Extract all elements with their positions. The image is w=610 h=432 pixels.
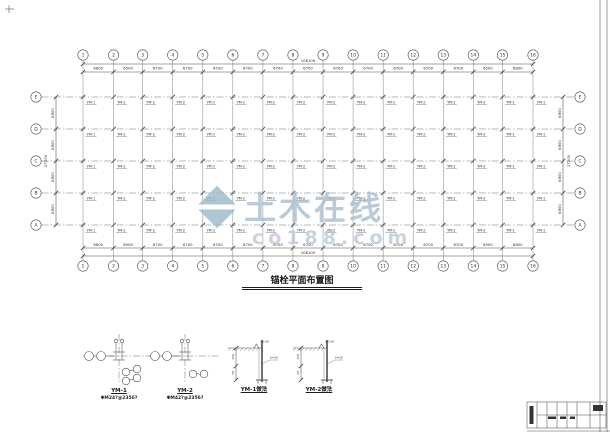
svg-text:15: 15: [500, 53, 506, 59]
svg-text:YM-2: YM-2: [327, 132, 335, 136]
svg-text:5: 5: [201, 264, 204, 270]
svg-text:6700: 6700: [363, 242, 373, 247]
svg-text:B: B: [578, 191, 581, 197]
svg-text:YM-2: YM-2: [447, 164, 455, 168]
svg-text:YM-1: YM-1: [87, 164, 95, 168]
svg-text:YM-1: YM-1: [117, 100, 125, 104]
svg-text:6700: 6700: [183, 242, 193, 247]
svg-text:YM-2: YM-2: [447, 100, 455, 104]
svg-text:YM-2: YM-2: [146, 196, 154, 200]
svg-text:16: 16: [530, 53, 536, 59]
svg-text:6700: 6700: [303, 66, 313, 71]
svg-text:YM-1: YM-1: [506, 196, 514, 200]
svg-text:6800: 6800: [93, 66, 103, 71]
svg-text:YM-2: YM-2: [357, 164, 365, 168]
svg-text:YM-2: YM-2: [237, 196, 245, 200]
svg-text:6700: 6700: [213, 242, 223, 247]
svg-text:14: 14: [471, 53, 477, 59]
svg-text:6500: 6500: [483, 242, 493, 247]
svg-text:6700: 6700: [393, 242, 403, 247]
svg-text:YM-2: YM-2: [357, 196, 365, 200]
svg-text:A: A: [34, 223, 37, 229]
svg-text:1: 1: [82, 53, 85, 59]
svg-text:YM-1: YM-1: [537, 228, 545, 232]
svg-text:6700: 6700: [153, 66, 163, 71]
svg-text:YM-2: YM-2: [387, 228, 395, 232]
svg-text:6800: 6800: [513, 66, 523, 71]
svg-text:10: 10: [350, 264, 356, 270]
svg-text:YM-1: YM-1: [537, 132, 545, 136]
svg-text:6700: 6700: [363, 66, 373, 71]
svg-text:YM-1: YM-1: [87, 196, 95, 200]
svg-text:5: 5: [201, 53, 204, 59]
svg-text:7: 7: [262, 53, 265, 59]
anchor-tags: YM-1YM-1YM-2YM-2YM-2YM-2YM-2YM-2YM-2YM-2…: [81, 95, 547, 233]
svg-text:YM-2: YM-2: [297, 228, 305, 232]
svg-text:YM-2: YM-2: [207, 132, 215, 136]
svg-text:E: E: [35, 95, 38, 101]
svg-text:YM-1: YM-1: [537, 100, 545, 104]
detail-label-ym1-method: YM-1做法: [226, 387, 282, 394]
svg-text:YM-2: YM-2: [267, 228, 275, 232]
svg-text:YM-2: YM-2: [477, 196, 485, 200]
svg-text:YM-2: YM-2: [297, 196, 305, 200]
svg-text:6800: 6800: [50, 204, 55, 214]
svg-text:YM-2: YM-2: [447, 132, 455, 136]
svg-text:3: 3: [141, 264, 144, 270]
svg-text:8: 8: [292, 53, 295, 59]
ym-plan-detail: [149, 334, 219, 384]
svg-text:8: 8: [292, 264, 295, 270]
svg-text:YM-1: YM-1: [537, 164, 545, 168]
svg-text:YM-2: YM-2: [417, 100, 425, 104]
svg-text:6700: 6700: [273, 66, 283, 71]
svg-text:6700: 6700: [303, 242, 313, 247]
drawing-sheet: 1061006800650067006700670067006700670067…: [0, 0, 610, 432]
svg-text:YM-1: YM-1: [117, 196, 125, 200]
svg-text:6700: 6700: [273, 242, 283, 247]
svg-text:YM-2: YM-2: [477, 100, 485, 104]
svg-text:4: 4: [171, 53, 174, 59]
svg-text:6700: 6700: [153, 242, 163, 247]
svg-text:YM-1: YM-1: [117, 164, 125, 168]
svg-text:YM-2: YM-2: [447, 228, 455, 232]
svg-text:6: 6: [231, 264, 234, 270]
svg-text:50: 50: [296, 371, 300, 375]
detail-label-ym2: YM-2: [157, 388, 213, 395]
title-block: [527, 402, 606, 428]
svg-text:YM-2: YM-2: [237, 100, 245, 104]
ym-section-detail: ±0.0015050δ=20200: [228, 340, 278, 390]
svg-text:6800: 6800: [513, 242, 523, 247]
svg-text:YM-2: YM-2: [417, 132, 425, 136]
svg-text:6800: 6800: [557, 172, 562, 182]
svg-text:YM-2: YM-2: [417, 196, 425, 200]
svg-text:6700: 6700: [183, 66, 193, 71]
svg-text:YM-2: YM-2: [177, 164, 185, 168]
detail-note-ym2: ΦM42?@235δ?: [150, 396, 220, 402]
svg-text:12: 12: [410, 264, 416, 270]
svg-text:YM-2: YM-2: [146, 164, 154, 168]
svg-text:YM-1: YM-1: [506, 100, 514, 104]
svg-text:6700: 6700: [423, 66, 433, 71]
svg-text:YM-2: YM-2: [477, 228, 485, 232]
svg-text:YM-2: YM-2: [177, 228, 185, 232]
svg-text:6700: 6700: [243, 66, 253, 71]
svg-text:YM-1: YM-1: [117, 132, 125, 136]
svg-text:6800: 6800: [50, 172, 55, 182]
svg-text:E: E: [579, 95, 582, 101]
svg-text:11: 11: [380, 264, 386, 270]
svg-text:YM-2: YM-2: [387, 132, 395, 136]
svg-text:6700: 6700: [453, 242, 463, 247]
svg-text:9: 9: [322, 53, 325, 59]
svg-text:4: 4: [171, 264, 174, 270]
svg-text:YM-2: YM-2: [297, 164, 305, 168]
svg-text:YM-2: YM-2: [177, 132, 185, 136]
svg-text:15: 15: [500, 264, 506, 270]
svg-text:YM-2: YM-2: [387, 196, 395, 200]
svg-text:δ=20: δ=20: [335, 356, 343, 360]
svg-text:106100: 106100: [301, 58, 316, 63]
svg-text:6800: 6800: [557, 140, 562, 150]
svg-text:YM-2: YM-2: [207, 100, 215, 104]
svg-text:50: 50: [231, 371, 235, 375]
svg-text:YM-2: YM-2: [237, 132, 245, 136]
svg-text:YM-2: YM-2: [327, 196, 335, 200]
svg-text:10: 10: [350, 53, 356, 59]
svg-text:6800: 6800: [557, 204, 562, 214]
svg-text:C: C: [34, 159, 37, 165]
svg-text:YM-2: YM-2: [357, 132, 365, 136]
svg-text:YM-2: YM-2: [297, 132, 305, 136]
svg-text:YM-2: YM-2: [327, 164, 335, 168]
svg-text:6: 6: [231, 53, 234, 59]
svg-text:YM-2: YM-2: [327, 228, 335, 232]
svg-text:6700: 6700: [333, 66, 343, 71]
svg-text:12: 12: [410, 53, 416, 59]
svg-text:6800: 6800: [93, 242, 103, 247]
svg-text:150: 150: [231, 354, 235, 360]
svg-text:14: 14: [471, 264, 477, 270]
detail-label-ym1: YM-1: [91, 388, 147, 395]
svg-text:7: 7: [262, 264, 265, 270]
structural-plan-svg: 1061006800650067006700670067006700670067…: [0, 0, 610, 432]
svg-text:YM-2: YM-2: [357, 228, 365, 232]
svg-text:YM-2: YM-2: [207, 196, 215, 200]
plan-title: 锚栓平面布置图: [242, 276, 362, 290]
svg-text:27200: 27200: [566, 154, 571, 167]
svg-text:YM-2: YM-2: [146, 100, 154, 104]
detail-label-ym2-method: YM-2做法: [291, 387, 347, 394]
svg-text:YM-2: YM-2: [387, 164, 395, 168]
svg-text:1: 1: [82, 264, 85, 270]
svg-text:6700: 6700: [453, 66, 463, 71]
svg-text:13: 13: [440, 53, 446, 59]
svg-text:6500: 6500: [123, 66, 133, 71]
svg-text:YM-2: YM-2: [447, 196, 455, 200]
svg-text:2: 2: [112, 264, 115, 270]
svg-text:C: C: [578, 159, 581, 165]
svg-text:A: A: [578, 223, 581, 229]
svg-text:6500: 6500: [483, 66, 493, 71]
svg-text:6700: 6700: [243, 242, 253, 247]
svg-text:YM-1: YM-1: [87, 132, 95, 136]
svg-text:6700: 6700: [393, 66, 403, 71]
svg-text:6500: 6500: [123, 242, 133, 247]
svg-text:YM-2: YM-2: [207, 228, 215, 232]
svg-text:YM-2: YM-2: [297, 100, 305, 104]
svg-text:6800: 6800: [557, 108, 562, 118]
svg-text:6700: 6700: [423, 242, 433, 247]
svg-text:13: 13: [440, 264, 446, 270]
svg-text:YM-2: YM-2: [357, 100, 365, 104]
svg-text:6700: 6700: [333, 242, 343, 247]
svg-text:YM-1: YM-1: [506, 228, 514, 232]
svg-text:YM-2: YM-2: [237, 164, 245, 168]
svg-text:YM-2: YM-2: [417, 228, 425, 232]
svg-text:11: 11: [380, 53, 386, 59]
svg-text:3: 3: [141, 53, 144, 59]
svg-text:YM-2: YM-2: [417, 164, 425, 168]
svg-text:106100: 106100: [301, 250, 316, 255]
svg-text:YM-2: YM-2: [237, 228, 245, 232]
svg-text:YM-2: YM-2: [267, 164, 275, 168]
svg-text:YM-2: YM-2: [477, 164, 485, 168]
svg-text:YM-1: YM-1: [506, 164, 514, 168]
svg-text:YM-1: YM-1: [537, 196, 545, 200]
svg-text:6800: 6800: [50, 108, 55, 118]
svg-text:B: B: [34, 191, 37, 197]
svg-text:9: 9: [322, 264, 325, 270]
svg-text:6800: 6800: [50, 140, 55, 150]
svg-text:2: 2: [112, 53, 115, 59]
svg-text:δ=20: δ=20: [270, 356, 278, 360]
svg-text:YM-2: YM-2: [207, 164, 215, 168]
svg-text:16: 16: [530, 264, 536, 270]
svg-text:27200: 27200: [43, 154, 48, 167]
svg-text:YM-1: YM-1: [87, 100, 95, 104]
svg-text:YM-2: YM-2: [327, 100, 335, 104]
svg-text:YM-2: YM-2: [267, 132, 275, 136]
ym-plan-detail: [83, 334, 153, 385]
svg-text:YM-2: YM-2: [177, 196, 185, 200]
svg-text:YM-2: YM-2: [146, 228, 154, 232]
svg-text:YM-1: YM-1: [87, 228, 95, 232]
svg-text:YM-2: YM-2: [477, 132, 485, 136]
svg-text:YM-2: YM-2: [267, 196, 275, 200]
ym-section-detail: ±0.0015050δ=20200: [293, 340, 343, 390]
detail-note-ym1: ΦM24?@235δ?: [84, 396, 154, 402]
svg-text:150: 150: [296, 354, 300, 360]
svg-text:YM-2: YM-2: [146, 132, 154, 136]
svg-text:6700: 6700: [213, 66, 223, 71]
svg-text:YM-1: YM-1: [117, 228, 125, 232]
svg-text:YM-2: YM-2: [267, 100, 275, 104]
svg-text:YM-2: YM-2: [177, 100, 185, 104]
svg-text:YM-2: YM-2: [387, 100, 395, 104]
svg-text:YM-1: YM-1: [506, 132, 514, 136]
